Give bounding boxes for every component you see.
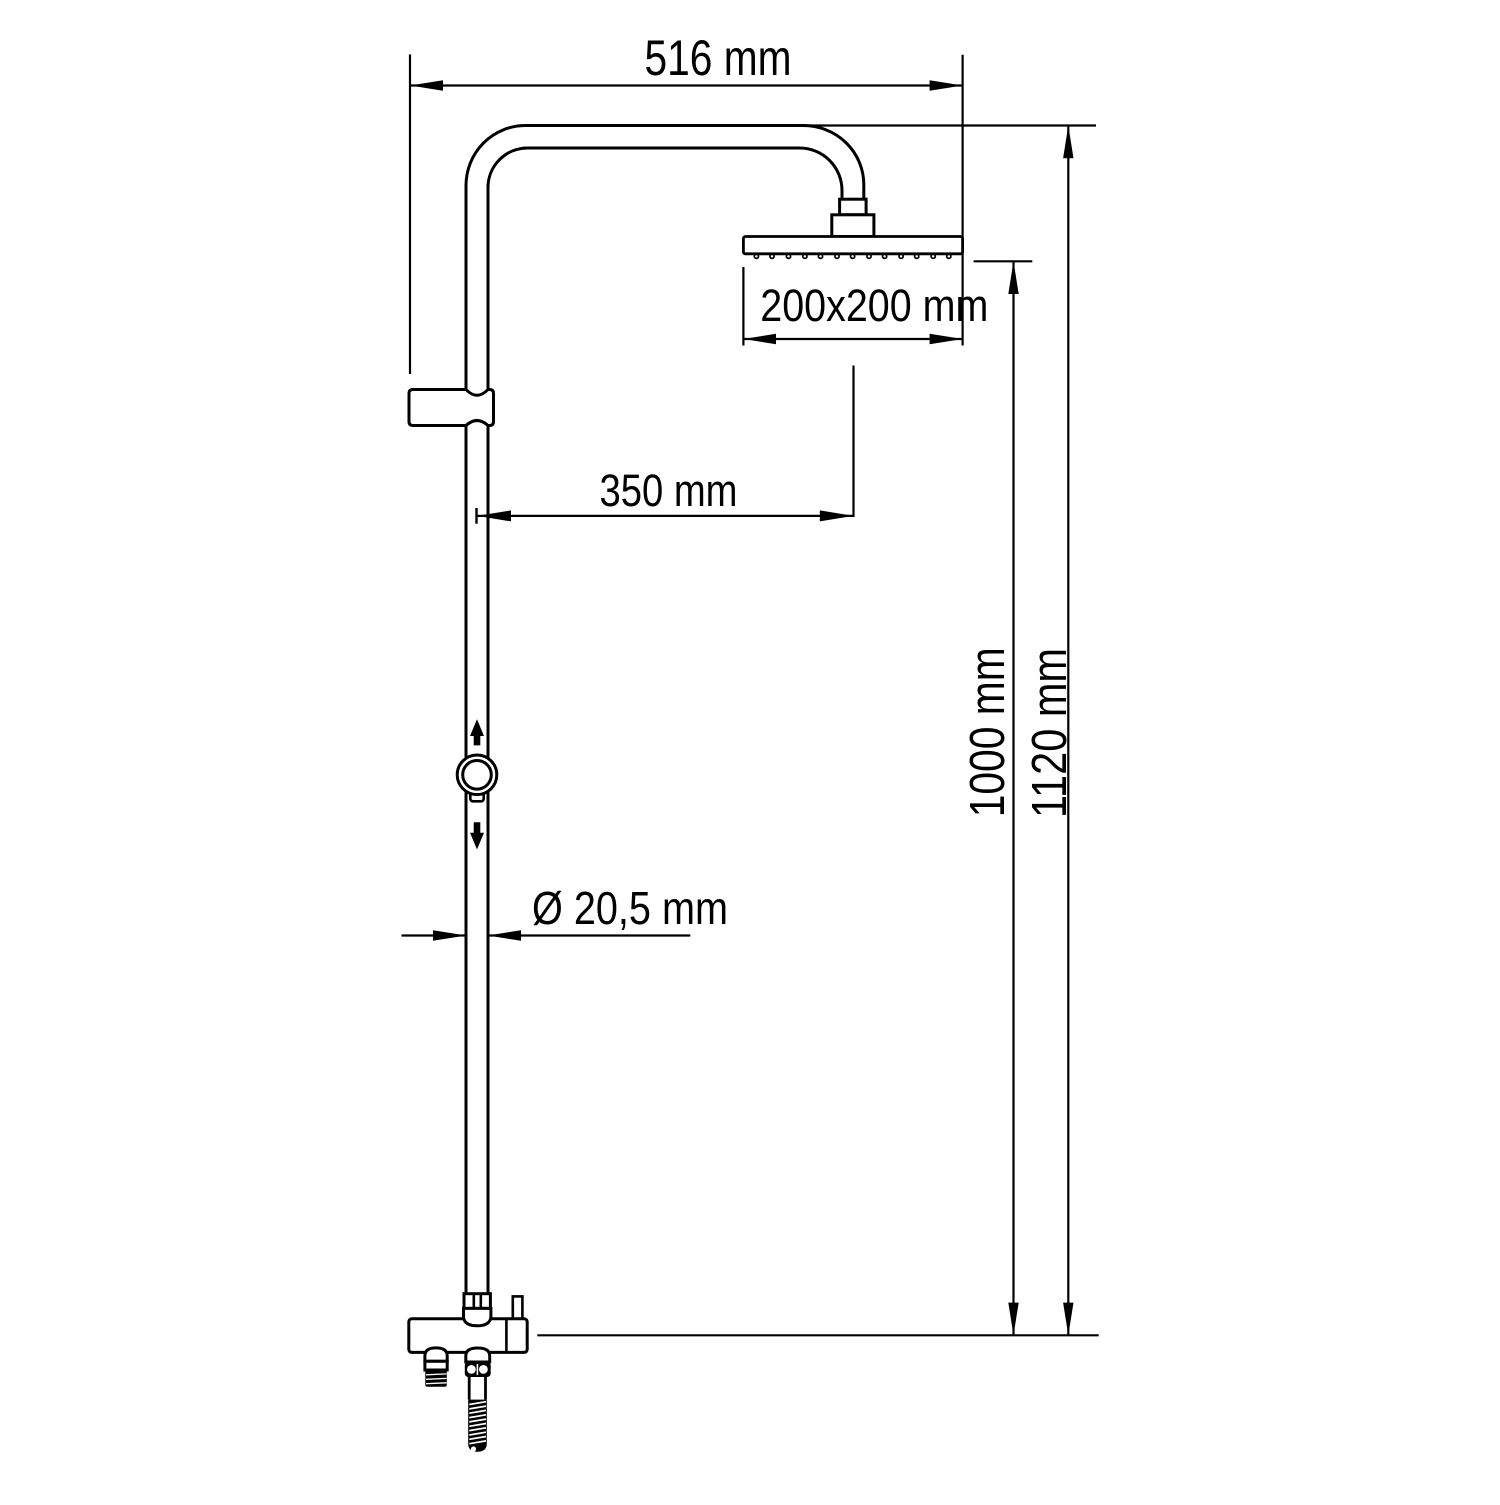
svg-text:1120 mm: 1120 mm bbox=[1023, 648, 1077, 818]
svg-text:Ø 20,5 mm: Ø 20,5 mm bbox=[532, 882, 728, 934]
svg-text:1000 mm: 1000 mm bbox=[961, 647, 1015, 817]
svg-text:200x200 mm: 200x200 mm bbox=[760, 280, 988, 331]
svg-text:516 mm: 516 mm bbox=[645, 30, 792, 86]
svg-text:350 mm: 350 mm bbox=[600, 465, 738, 516]
